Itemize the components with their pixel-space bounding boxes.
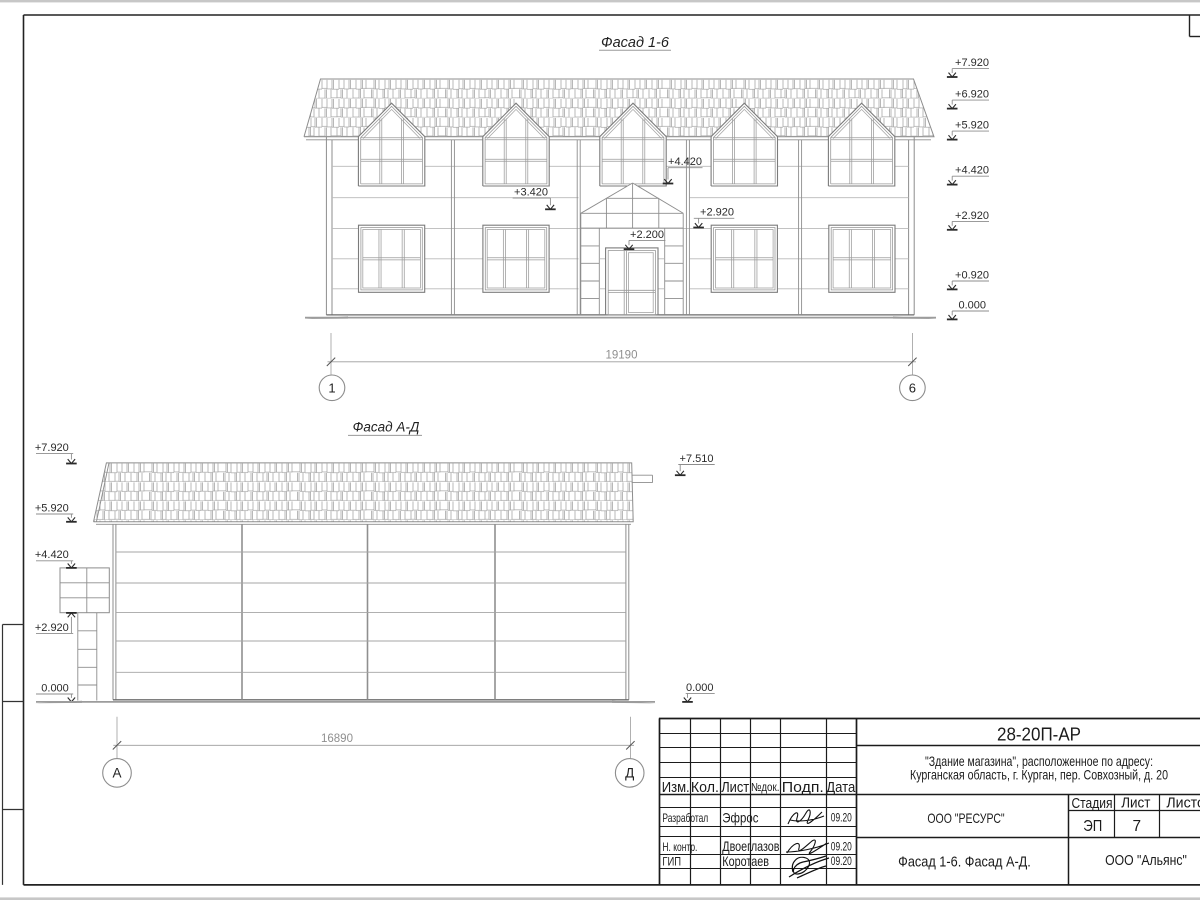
svg-text:0.000: 0.000 [41,682,69,694]
svg-text:+5.920: +5.920 [35,502,69,514]
svg-text:1: 1 [328,380,335,395]
svg-text:19190: 19190 [606,350,638,362]
svg-text:ООО "РЕСУРС": ООО "РЕСУРС" [927,811,1004,826]
svg-text:+7.920: +7.920 [35,442,69,454]
svg-text:Н. контр.: Н. контр. [662,841,697,854]
svg-text:Лист: Лист [1121,795,1151,811]
svg-text:16890: 16890 [321,733,353,745]
svg-text:+4.420: +4.420 [955,165,989,177]
svg-text:+2.920: +2.920 [955,210,989,222]
svg-text:Коротаев: Коротаев [722,854,769,869]
svg-text:Лист: Лист [721,779,749,796]
svg-text:+2.920: +2.920 [700,207,734,219]
svg-text:+6.920: +6.920 [955,89,989,101]
svg-text:+2.200: +2.200 [630,229,664,241]
svg-text:Стадия: Стадия [1072,796,1113,812]
svg-text:Фасад 1-6. Фасад А-Д.: Фасад 1-6. Фасад А-Д. [898,854,1031,871]
svg-text:Разработал: Разработал [662,812,708,825]
svg-text:Дата: Дата [826,779,856,796]
svg-text:09.20: 09.20 [831,839,852,853]
svg-text:09.20: 09.20 [831,854,852,868]
svg-text:+3.420: +3.420 [514,186,548,198]
svg-text:Листов: Листов [1166,795,1200,811]
svg-text:Изм.: Изм. [662,779,690,796]
svg-text:+4.420: +4.420 [35,549,69,561]
svg-text:09.20: 09.20 [831,811,852,825]
svg-text:28-20П-АР: 28-20П-АР [997,724,1081,745]
svg-text:Эфрос: Эфрос [722,810,758,825]
svg-text:0.000: 0.000 [958,299,986,311]
svg-text:+5.920: +5.920 [955,120,989,132]
svg-text:ЭП: ЭП [1083,818,1102,835]
svg-text:Д: Д [625,766,634,781]
svg-text:А: А [112,766,121,781]
svg-text:ГИП: ГИП [662,855,681,868]
svg-text:Двоеглазов: Двоеглазов [722,839,779,854]
svg-text:№док.: №док. [751,781,780,794]
svg-text:Фасад А-Д: Фасад А-Д [353,420,420,435]
svg-text:+4.420: +4.420 [668,156,702,168]
svg-text:Подп.: Подп. [782,779,824,796]
svg-text:7: 7 [1133,818,1142,835]
svg-text:6: 6 [909,380,916,395]
svg-text:+7.510: +7.510 [680,453,714,465]
svg-text:+7.920: +7.920 [955,57,989,69]
svg-text:+0.920: +0.920 [955,269,989,281]
svg-text:ООО "Альянс": ООО "Альянс" [1105,852,1187,869]
svg-text:Курганская область, г. Курган,: Курганская область, г. Курган, пер. Совх… [910,767,1168,783]
svg-text:Кол.: Кол. [691,779,719,796]
svg-text:Фасад 1-6: Фасад 1-6 [601,35,670,51]
svg-text:+2.920: +2.920 [35,622,69,634]
svg-text:0.000: 0.000 [686,682,714,694]
